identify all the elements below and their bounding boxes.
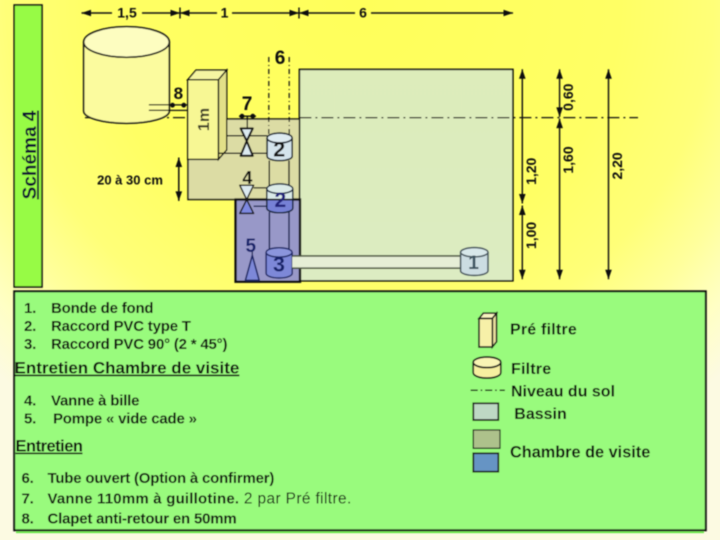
svg-text:1m: 1m	[196, 108, 213, 131]
svg-text:Vanne à bille: Vanne à bille	[51, 393, 139, 410]
svg-text:4.: 4.	[24, 393, 36, 410]
svg-text:7: 7	[242, 94, 253, 115]
svg-text:Niveau du sol: Niveau du sol	[511, 384, 615, 401]
svg-text:Vanne 110mm à guillotine. 2 pa: Vanne 110mm à guillotine. 2 par Pré filt…	[48, 491, 352, 508]
svg-text:1.: 1.	[24, 300, 36, 317]
svg-text:0,60: 0,60	[560, 83, 576, 110]
svg-text:2: 2	[273, 137, 285, 161]
svg-text:2.: 2.	[24, 318, 36, 335]
svg-text:Raccord PVC type T: Raccord PVC type T	[51, 318, 191, 335]
svg-text:Tube ouvert (Option à confirme: Tube ouvert (Option à confirmer)	[48, 470, 275, 487]
svg-text:1,00: 1,00	[523, 222, 539, 249]
svg-text:5.: 5.	[24, 411, 36, 428]
svg-text:Schéma 4: Schéma 4	[20, 110, 41, 199]
svg-text:20 à 30 cm: 20 à 30 cm	[97, 173, 163, 188]
svg-text:5: 5	[246, 236, 257, 257]
svg-text:6.: 6.	[22, 470, 34, 487]
svg-text:Pré filtre: Pré filtre	[510, 322, 577, 339]
svg-text:3: 3	[273, 253, 285, 277]
svg-text:1: 1	[221, 5, 229, 21]
svg-text:8: 8	[174, 84, 183, 103]
svg-text:Filtre: Filtre	[511, 361, 551, 378]
svg-text:6: 6	[275, 48, 286, 69]
svg-text:3.: 3.	[24, 336, 36, 353]
svg-text:2,20: 2,20	[609, 152, 625, 179]
svg-text:Bassin: Bassin	[514, 406, 566, 423]
svg-text:8.: 8.	[22, 511, 34, 528]
svg-text:2: 2	[275, 189, 287, 212]
svg-text:1: 1	[468, 252, 479, 274]
svg-text:1,20: 1,20	[523, 157, 539, 184]
svg-text:Pompe « vide cade »: Pompe « vide cade »	[53, 411, 197, 428]
svg-text:1,60: 1,60	[560, 146, 576, 173]
svg-text:6: 6	[359, 5, 367, 21]
svg-text:1,5: 1,5	[117, 5, 137, 21]
svg-text:7.: 7.	[22, 491, 34, 508]
svg-text:Clapet anti-retour en 50mm: Clapet anti-retour en 50mm	[48, 511, 237, 528]
svg-text:Entretien: Entretien	[16, 438, 83, 456]
svg-text:Entretien Chambre de visite: Entretien Chambre de visite	[15, 359, 240, 378]
svg-text:Bonde de fond: Bonde de fond	[51, 300, 153, 317]
svg-text:Chambre de visite: Chambre de visite	[510, 444, 650, 462]
svg-text:Raccord PVC 90° (2 * 45°): Raccord PVC 90° (2 * 45°)	[51, 336, 227, 353]
